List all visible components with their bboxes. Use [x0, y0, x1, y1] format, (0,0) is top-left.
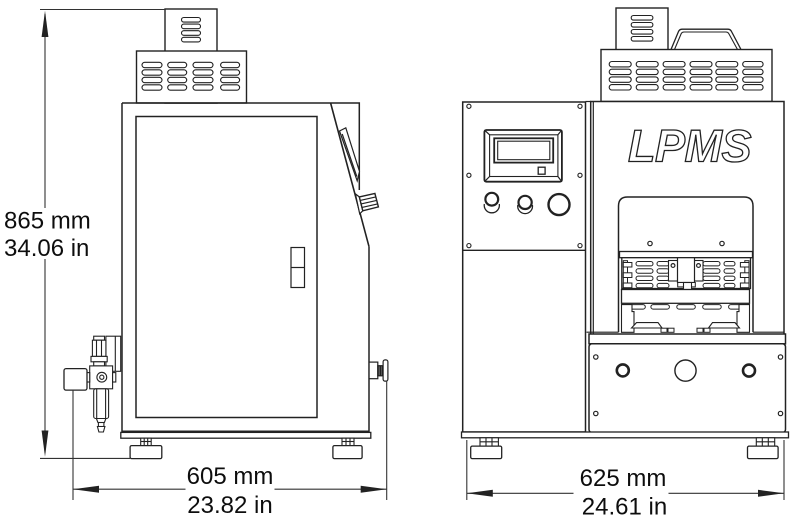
svg-text:23.82 in: 23.82 in [187, 492, 272, 519]
svg-text:34.06 in: 34.06 in [4, 235, 89, 262]
svg-text:625 mm: 625 mm [580, 465, 667, 492]
svg-text:865 mm: 865 mm [4, 208, 91, 235]
svg-text:605 mm: 605 mm [187, 463, 274, 490]
svg-text:24.61 in: 24.61 in [582, 494, 667, 519]
svg-text:LPMS: LPMS [628, 121, 751, 172]
